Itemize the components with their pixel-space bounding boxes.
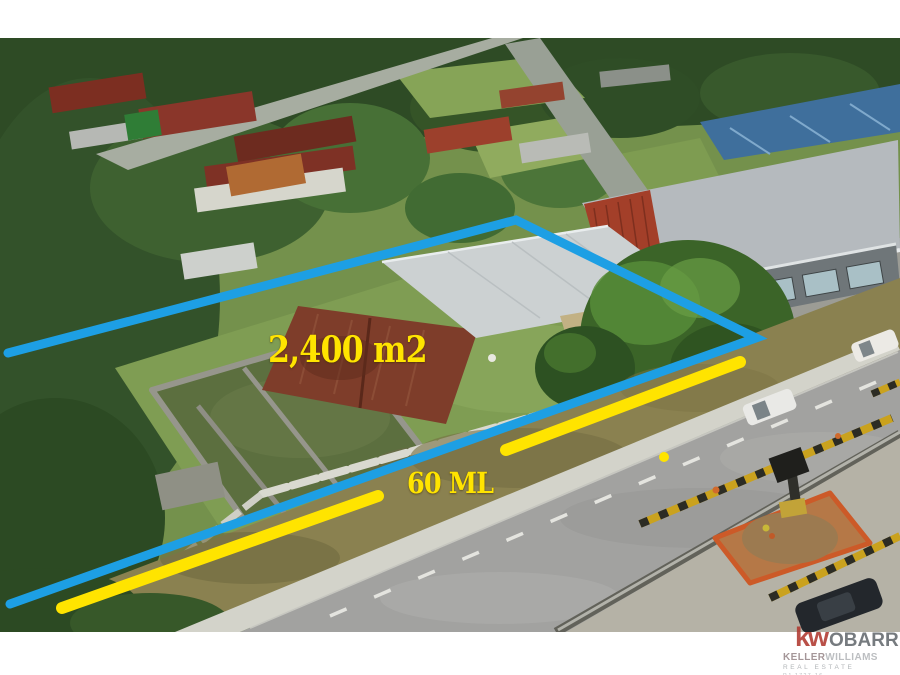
lamp-post-light — [488, 354, 496, 362]
company-name-light: WILLIAMS — [825, 652, 878, 663]
company-name: KELLERWILLIAMS — [783, 653, 900, 663]
aerial-scene — [0, 38, 900, 632]
listing-photo-page: 2,400 m2 60 ML kw OBARRIO KELLERWILLIAMS… — [0, 0, 900, 675]
traffic-cone — [835, 433, 841, 439]
company-tagline: REAL ESTATE — [783, 665, 900, 672]
brand-name: OBARRIO — [829, 631, 900, 650]
kw-obarrio-logo: kw OBARRIO — [795, 624, 900, 651]
company-name-bold: KELLER — [783, 652, 825, 663]
brand-watermark: kw OBARRIO KELLERWILLIAMS REAL ESTATE PJ… — [783, 624, 900, 675]
traffic-cone — [713, 487, 720, 494]
area-label: 2,400 m2 — [268, 329, 427, 371]
kw-logo-icon: kw — [795, 624, 827, 651]
frontage-label: 60 ML — [407, 466, 493, 500]
yellow-marker-dot — [659, 452, 669, 462]
aerial-photo: 2,400 m2 60 ML — [0, 38, 900, 632]
